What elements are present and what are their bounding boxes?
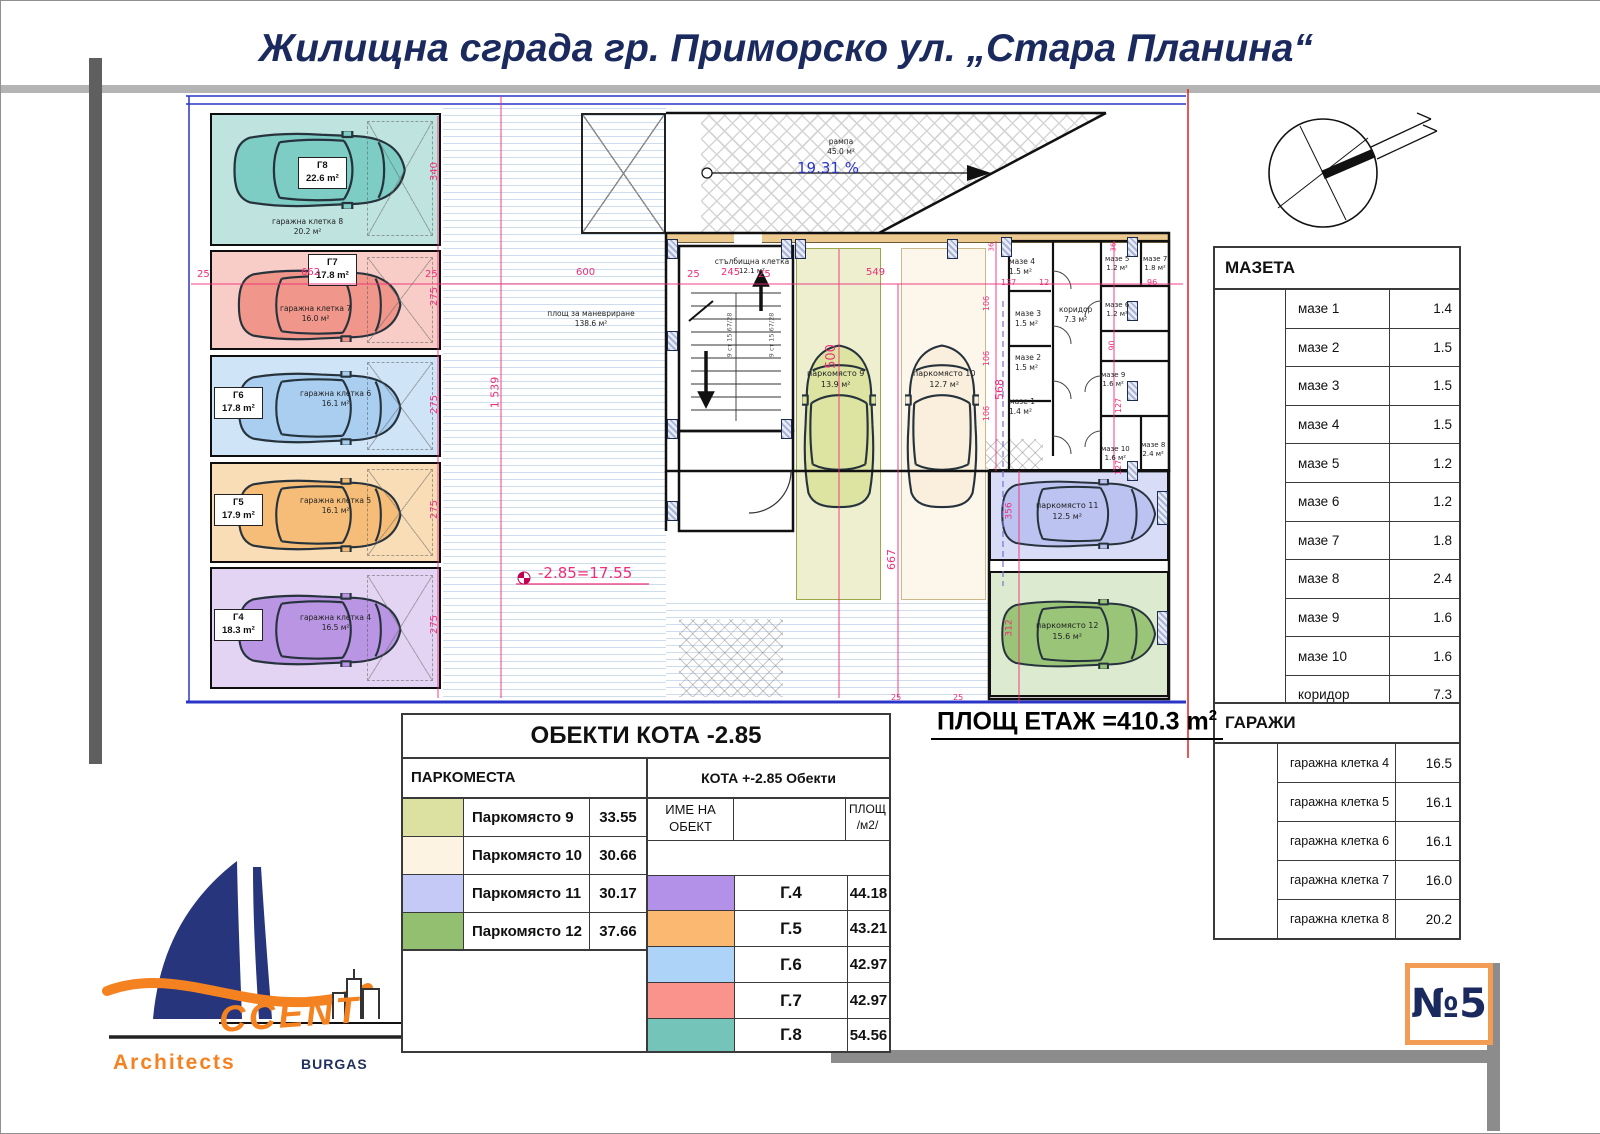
table-row: мазе 31.5: [1286, 367, 1459, 406]
table-row: Паркомясто 9 33.55: [403, 799, 648, 837]
column-pier: [781, 239, 792, 259]
ramp-slope-value: 19.31 %: [797, 159, 859, 177]
sheet-number-badge: №5: [1405, 963, 1493, 1045]
table-row: Г.8 54.56: [648, 1019, 889, 1051]
dim: 1 539: [488, 377, 501, 409]
dim: 25: [953, 693, 963, 702]
room-label: мазе 61.2 м²: [1105, 301, 1129, 319]
table-row: мазе 51.2: [1286, 444, 1459, 483]
parking-label-9: паркомясто 913.9 м²: [807, 369, 864, 391]
parking-section-header: ПАРКОМЕСТА: [403, 759, 648, 799]
dim: 106: [982, 406, 991, 421]
dim: 25: [197, 269, 210, 280]
room-label: мазе 11.4 м²: [1009, 397, 1035, 417]
bottom-shadow-bar: [831, 1050, 1499, 1063]
dim: 549: [866, 267, 885, 278]
room-label: мазе 91.6 м²: [1101, 371, 1125, 389]
dim: 25: [891, 693, 901, 702]
color-swatch: [648, 983, 735, 1019]
parking-label-10: паркомясто 1012.7 м²: [913, 369, 975, 391]
left-shadow-bar: [89, 58, 102, 764]
dim: 90: [1108, 340, 1117, 350]
parking-label-11: паркомясто 1112.5 м²: [1036, 501, 1098, 523]
room-label: мазе 101.6 м²: [1101, 445, 1130, 463]
door-swing-zone: [367, 362, 433, 450]
column-pier: [781, 419, 792, 439]
table-row: мазе 101.6: [1286, 637, 1459, 676]
room-label-corridor: коридор7.3 м²: [1059, 305, 1092, 325]
table-row: мазе 82.4: [1286, 560, 1459, 599]
table-row: Г.6 42.97: [648, 947, 889, 983]
room-label: мазе 71.8 м²: [1143, 255, 1167, 273]
table-row: гаражна клетка 820.2: [1278, 900, 1459, 938]
door-swing-zone: [367, 121, 433, 236]
dim: 36: [1109, 243, 1117, 252]
column-pier: [1127, 381, 1138, 401]
table-row: мазе 21.5: [1286, 329, 1459, 368]
table-row: гаражна клетка 716.0: [1278, 861, 1459, 900]
level-mark-value: -2.85=17.55: [538, 564, 632, 582]
dim: 275: [429, 287, 440, 306]
color-swatch: [648, 911, 735, 947]
objects-table: ОБЕКТИ КОТА -2.85 ПАРКОМЕСТА КОТА +-2.85…: [401, 713, 891, 1053]
garage-cell-label: гаражна клетка 616.1 м²: [300, 389, 371, 409]
room-label: мазе 41.5 м²: [1009, 257, 1035, 277]
table-row: мазе 41.5: [1286, 406, 1459, 445]
table-row: гаражна клетка 616.1: [1278, 822, 1459, 861]
garages-table: ГАРАЖИ гаражна клетка 416.5 гаражна клет…: [1213, 702, 1461, 940]
garage-box-g8: Г8 22.6 m² гаражна клетка 820.2 м²: [210, 113, 441, 246]
shaft-crossed-box: [581, 113, 666, 234]
room-label: мазе 21.5 м²: [1015, 353, 1041, 373]
garage-cell-label: гаражна клетка 716.0 м²: [280, 304, 351, 324]
north-arrow-icon: [1269, 113, 1437, 227]
column-pier: [667, 501, 678, 521]
table-row: Г.5 43.21: [648, 911, 889, 947]
empty-cell: [403, 951, 648, 1051]
dim: 36: [987, 243, 995, 252]
dim: 340: [429, 162, 440, 181]
dim: 25: [425, 269, 438, 280]
dim: 275: [429, 500, 440, 519]
table-row: мазе 11.4: [1286, 290, 1459, 329]
wall-door-gap: [734, 232, 762, 244]
column-pier: [1127, 237, 1138, 257]
page-title: Жилищна сграда гр. Приморско ул. „Стара …: [171, 27, 1401, 71]
empty-header-cell: [734, 799, 846, 841]
column-pier: [667, 239, 678, 259]
color-swatch: [403, 875, 464, 912]
table-row: гаражна клетка 416.5: [1278, 744, 1459, 783]
column-pier: [1127, 461, 1138, 481]
top-divider-bar: [1, 85, 1600, 93]
drawing-sheet: Жилищна сграда гр. Приморско ул. „Стара …: [0, 0, 1600, 1134]
objects-section-header: КОТА +-2.85 Обекти: [648, 759, 889, 799]
garage-area: 22.6 m²: [306, 173, 339, 186]
column-pier: [667, 419, 678, 439]
mazeta-table-title: МАЗЕТА: [1215, 248, 1459, 290]
garage-tag-g4: Г4 18.3 m²: [214, 609, 263, 641]
dim: 106: [982, 296, 991, 311]
table-row: мазе 71.8: [1286, 522, 1459, 561]
stair-flight-note: 9 ст 15.67/28: [725, 313, 733, 358]
dim: 568: [993, 379, 1006, 400]
door-swing-zone: [367, 257, 433, 343]
garage-area: 17.8 m²: [316, 270, 349, 283]
ramp-area: [701, 114, 1106, 233]
stair-flight-note: 9 ст 15.67/28: [767, 313, 775, 358]
maneuver-label: площ за маневриране138.6 м²: [511, 309, 671, 329]
color-swatch: [648, 947, 735, 983]
garage-tag-g5: Г5 17.9 m²: [214, 494, 263, 526]
garage-box-g5: Г5 17.9 m² гаражна клетка 516.1 м²: [210, 462, 441, 563]
table-row: гаражна клетка 516.1: [1278, 783, 1459, 822]
dim: 137: [1001, 278, 1016, 287]
mazeta-table: МАЗЕТА мазе 11.4 мазе 21.5 мазе 31.5 маз…: [1213, 246, 1461, 716]
dim: 12: [1039, 278, 1049, 287]
table-spacer-column: [1215, 290, 1286, 714]
color-swatch: [648, 876, 735, 911]
dim: 275: [429, 615, 440, 634]
dim: 275: [429, 395, 440, 414]
table-row: мазе 61.2: [1286, 483, 1459, 522]
garage-cell-label: гаражна клетка 416.5 м²: [300, 613, 371, 633]
garage-code: Г6: [222, 390, 255, 403]
garages-table-title: ГАРАЖИ: [1215, 704, 1459, 744]
column-pier: [1157, 611, 1168, 645]
area-column-header: ПЛОЩ/м2/: [846, 799, 889, 841]
color-swatch: [403, 913, 464, 949]
garage-area: 17.9 m²: [222, 510, 255, 523]
garage-code: Г8: [306, 160, 339, 173]
garage-cell-label: гаражна клетка 820.2 м²: [272, 217, 343, 237]
table-spacer-column: [1215, 744, 1278, 938]
dim: 127: [1114, 398, 1123, 413]
room-label: мазе 82.4 м²: [1141, 441, 1165, 459]
garage-code: Г5: [222, 497, 255, 510]
garage-box-g6: Г6 17.8 m² гаражна клетка 616.1 м²: [210, 355, 441, 457]
dim: 500: [824, 344, 839, 369]
color-swatch: [403, 837, 464, 874]
garage-area: 17.8 m²: [222, 403, 255, 416]
car-icon: [802, 261, 876, 591]
column-pier: [667, 331, 678, 351]
dim: 312: [1005, 619, 1015, 636]
dim: 96: [1147, 278, 1157, 287]
car-icon: [905, 261, 979, 591]
parking-label-12: паркомясто 1215.6 м²: [1036, 621, 1098, 643]
dim: 667: [885, 549, 898, 570]
color-swatch: [648, 1019, 735, 1051]
dim: 600: [576, 267, 595, 278]
name-column-header: ИМЕ НАОБЕКТ: [648, 799, 734, 841]
logo-accent-text: CCENT: [218, 989, 363, 1041]
garage-area: 18.3 m²: [222, 625, 255, 638]
garage-box-g7: Г7 17.8 m² гаражна клетка 716.0 м²: [210, 250, 441, 350]
entrance-crosshatch: [679, 619, 783, 697]
logo-architects-text: Architects: [113, 1051, 236, 1075]
objects-table-title: ОБЕКТИ КОТА -2.85: [403, 715, 889, 759]
color-swatch: [403, 799, 464, 836]
logo-city-text: BURGAS: [301, 1056, 368, 1072]
table-row: Паркомясто 11 30.17: [403, 875, 648, 913]
room-label: мазе 31.5 м²: [1015, 309, 1041, 329]
column-pier: [795, 239, 806, 259]
column-pier: [1157, 491, 1168, 525]
ramp-label: рампа45.0 м²: [801, 137, 881, 157]
stair-label: стълбищна клетка12.1 м²: [697, 257, 807, 276]
garage-code: Г7: [316, 257, 349, 270]
table-row: Паркомясто 12 37.66: [403, 913, 648, 951]
garage-tag-g6: Г6 17.8 m²: [214, 387, 263, 419]
door-swing-zone: [367, 469, 433, 556]
floor-area-total: ПЛОЩ ЕТАЖ =410.3 m2: [931, 707, 1223, 740]
dim: 356: [1005, 502, 1015, 519]
table-row: Г.7 42.97: [648, 983, 889, 1019]
column-pier: [947, 239, 958, 259]
table-row: Г.4 44.18: [648, 875, 889, 911]
garage-tag-g8: Г8 22.6 m²: [298, 157, 347, 189]
table-row: мазе 91.6: [1286, 599, 1459, 638]
dim: 662: [301, 267, 320, 278]
garage-cell-label: гаражна клетка 516.1 м²: [300, 496, 371, 516]
table-row: Паркомясто 10 30.66: [403, 837, 648, 875]
door-swing-zone: [367, 575, 433, 681]
room-label: мазе 51.2 м²: [1105, 255, 1129, 273]
garage-box-g4: Г4 18.3 m² гаражна клетка 416.5 м²: [210, 567, 441, 689]
dim: 106: [982, 351, 991, 366]
garage-code: Г4: [222, 612, 255, 625]
column-pier: [1001, 237, 1012, 257]
